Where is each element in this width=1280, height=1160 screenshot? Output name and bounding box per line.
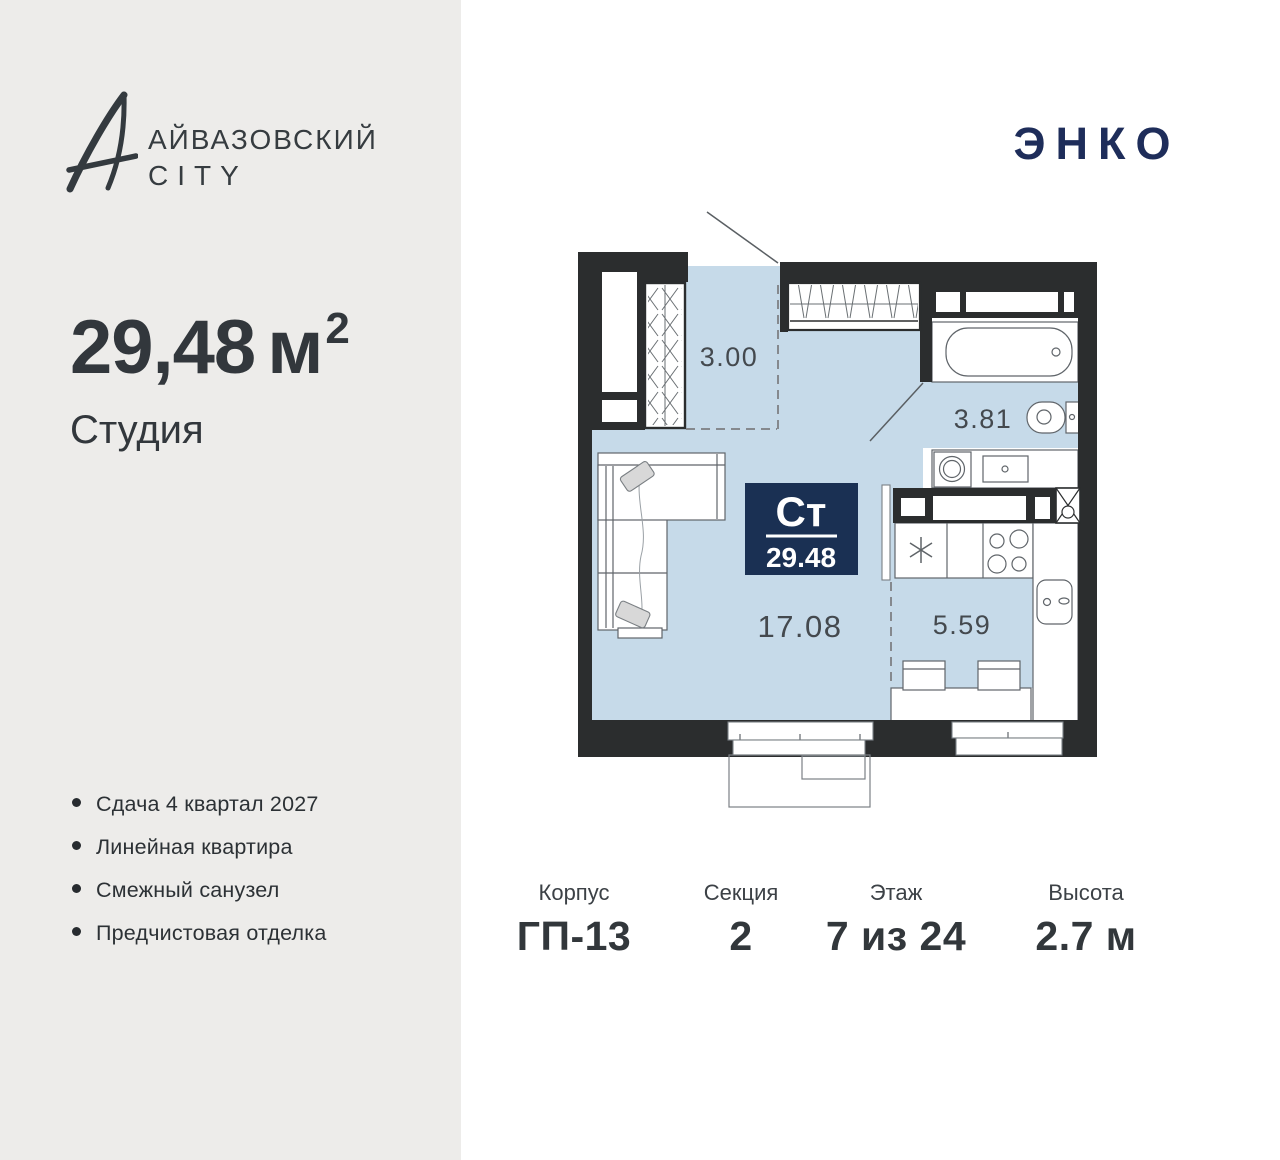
- apartment-area: 29,48м2: [70, 310, 349, 386]
- plan-badge-area: 29.48: [766, 542, 836, 573]
- plan-badge: Ст 29.48: [745, 483, 858, 575]
- plan-badge-type: Ст: [776, 488, 827, 535]
- bullet-dot-icon: [72, 927, 81, 936]
- window: [728, 722, 873, 755]
- wardrobe: [788, 283, 920, 330]
- detail-building: Корпус ГП-13: [517, 880, 631, 960]
- detail-value: ГП-13: [517, 913, 631, 960]
- detail-value: 2: [704, 913, 779, 960]
- feature-list: Сдача 4 квартал 2027 Линейная квартира С…: [72, 792, 327, 964]
- apartment-area-unit: м: [267, 305, 322, 390]
- detail-value: 2.7 м: [1035, 913, 1136, 960]
- brand-name-line1: АЙВАЗОВСКИЙ: [148, 124, 378, 156]
- balcony-outline: [729, 755, 870, 807]
- bullet-dot-icon: [72, 884, 81, 893]
- apartment-summary: 29,48м2 Студия: [70, 310, 349, 453]
- bathtub: [932, 322, 1078, 382]
- listing-card: АЙВАЗОВСКИЙ CITY ЭНКО 29,48м2 Студия Сда…: [0, 0, 1280, 1160]
- feature-item: Предчистовая отделка: [72, 921, 327, 943]
- feature-item: Сдача 4 квартал 2027: [72, 792, 327, 814]
- room-label-bathroom: 3.81: [954, 404, 1013, 434]
- feature-label: Смежный санузел: [96, 878, 279, 903]
- feature-label: Линейная квартира: [96, 835, 293, 860]
- brand-a-monogram-icon: [64, 88, 138, 194]
- toilet: [1027, 402, 1079, 433]
- room-label-kitchen: 5.59: [933, 610, 992, 640]
- kitchen-counter: [895, 523, 1033, 578]
- bullet-dot-icon: [72, 841, 81, 850]
- loggia-glazing: [645, 283, 685, 428]
- vent-shaft: [1056, 488, 1080, 523]
- brand-logo: АЙВАЗОВСКИЙ CITY: [64, 88, 444, 198]
- detail-label: Секция: [704, 880, 779, 906]
- entry-door-swing: [707, 212, 778, 263]
- detail-floor: Этаж 7 из 24: [826, 880, 966, 960]
- detail-ceiling-height: Высота 2.7 м: [1035, 880, 1136, 960]
- washing-machine-and-sink: [932, 450, 1078, 488]
- floor-plan: 3.00 3.81 17.08 5.59 Ст 29.48: [560, 200, 1120, 840]
- developer-logo-text: ЭНКО: [1014, 118, 1181, 169]
- door-leaf: [882, 485, 890, 580]
- detail-label: Высота: [1035, 880, 1136, 906]
- kitchen-sink: [1033, 523, 1078, 722]
- detail-label: Корпус: [517, 880, 631, 906]
- detail-section: Секция 2: [704, 880, 779, 960]
- developer-logo-enko: ЭНКО: [985, 118, 1210, 170]
- feature-item: Смежный санузел: [72, 878, 327, 900]
- brand-name: АЙВАЗОВСКИЙ CITY: [148, 124, 378, 192]
- feature-item: Линейная квартира: [72, 835, 327, 857]
- apartment-area-value: 29,48: [70, 305, 255, 390]
- detail-value: 7 из 24: [826, 913, 966, 960]
- feature-label: Предчистовая отделка: [96, 921, 327, 946]
- window: [952, 722, 1063, 755]
- brand-name-line2: CITY: [148, 160, 378, 192]
- apartment-area-exponent: 2: [325, 304, 348, 353]
- detail-label: Этаж: [826, 880, 966, 906]
- bullet-dot-icon: [72, 798, 81, 807]
- apartment-type: Студия: [70, 408, 349, 453]
- room-label-living: 17.08: [757, 609, 842, 644]
- feature-label: Сдача 4 квартал 2027: [96, 792, 319, 817]
- room-label-loggia: 3.00: [700, 342, 759, 372]
